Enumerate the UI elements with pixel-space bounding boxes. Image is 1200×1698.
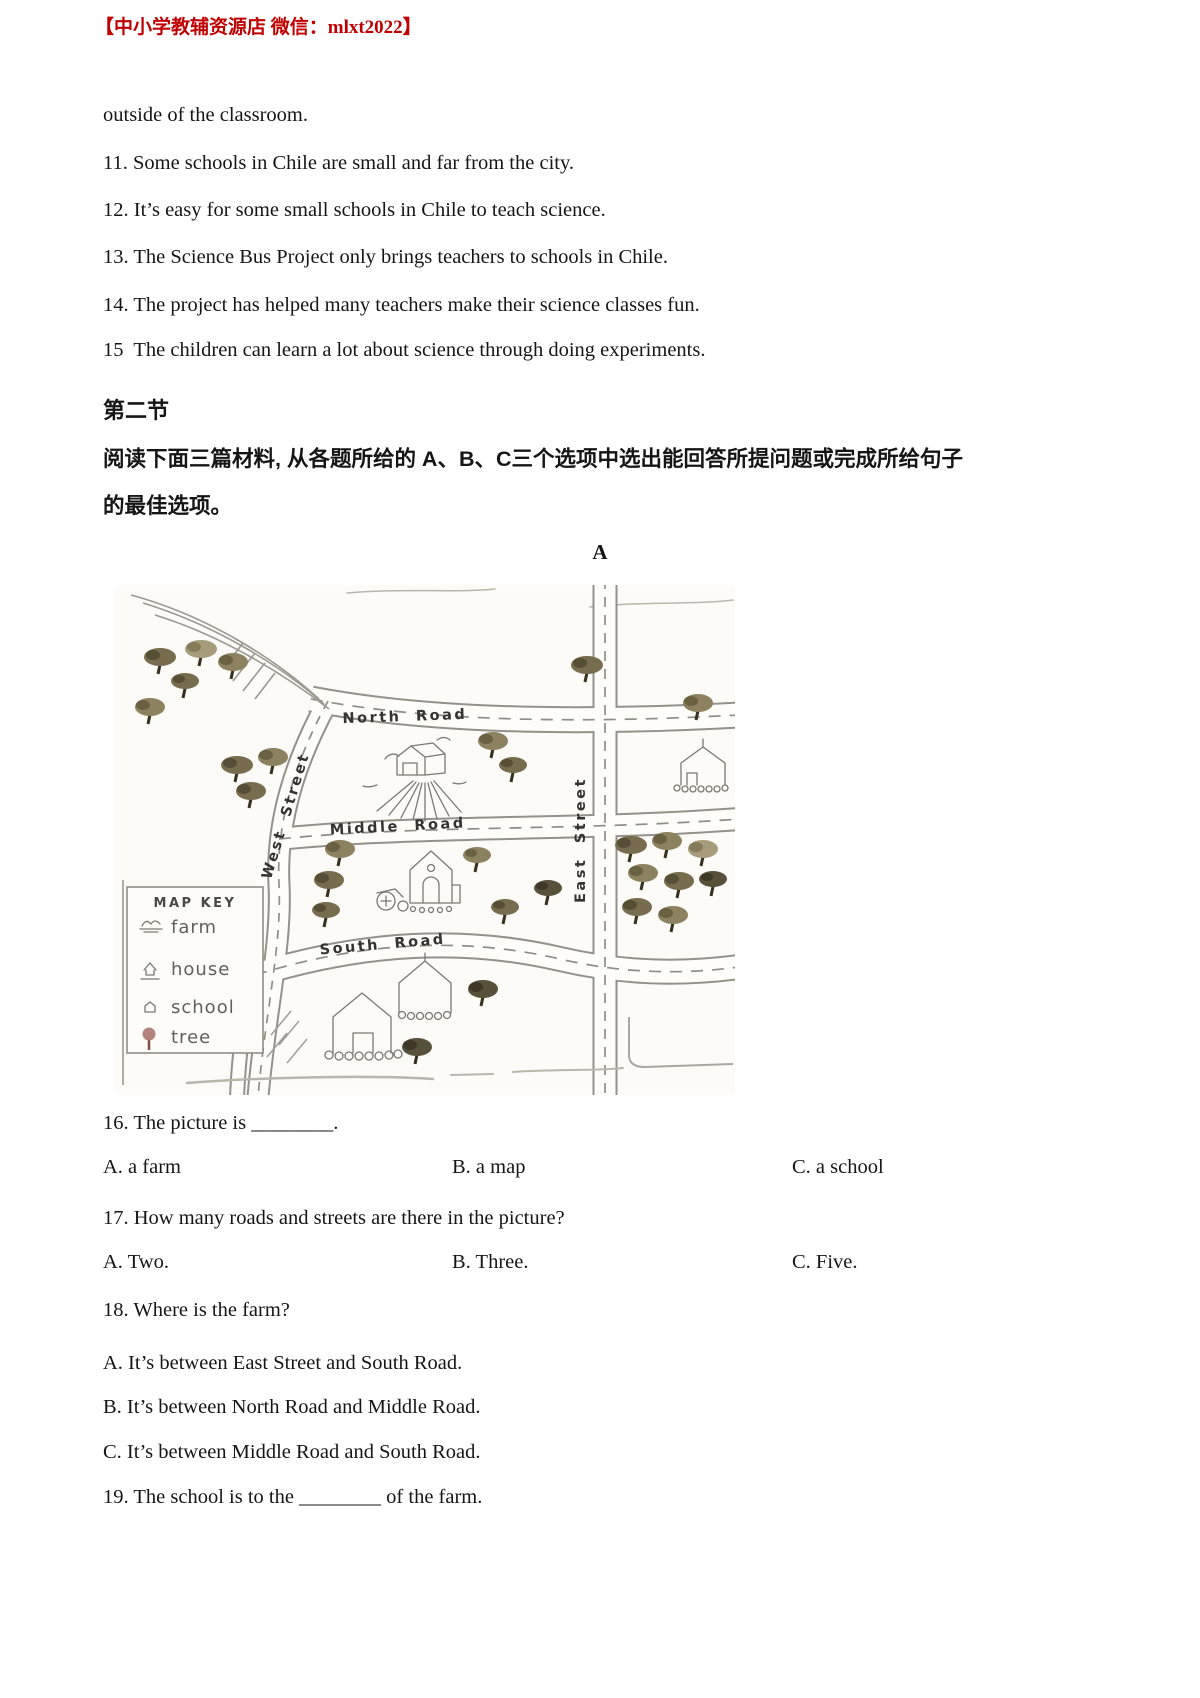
store-banner: 【中小学教辅资源店 微信：mlxt2022】	[95, 12, 422, 39]
passage-continuation-line: outside of the classroom.	[103, 93, 1160, 137]
options-16: A. a farm B. a map C. a school	[103, 1145, 1160, 1189]
option-16-b: B. a map	[452, 1145, 525, 1189]
option-18-b: B. It’s between North Road and Middle Ro…	[103, 1385, 1160, 1429]
option-18-c: C. It’s between Middle Road and South Ro…	[103, 1430, 1160, 1474]
question-18: 18. Where is the farm?	[103, 1288, 1160, 1332]
statement-15: 15 The children can learn a lot about sc…	[103, 328, 1160, 372]
passage-label-a: A	[0, 530, 1200, 574]
map-key-label-house: house	[171, 959, 230, 980]
map-key-label-tree: tree	[171, 1027, 211, 1048]
road-label-east: East Street	[573, 777, 589, 903]
question-19: 19. The school is to the ________ of the…	[103, 1475, 1160, 1519]
map-key-title: MAP KEY	[154, 896, 237, 911]
option-17-a: A. Two.	[103, 1240, 169, 1284]
option-17-b: B. Three.	[452, 1240, 528, 1284]
map-key-label-school: school	[171, 997, 235, 1018]
statement-13: 13. The Science Bus Project only brings …	[103, 235, 1160, 279]
map-image: .rlbl{font-family:"DejaVu Sans",sans-ser…	[115, 585, 735, 1095]
question-16: 16. The picture is ________.	[103, 1101, 1160, 1145]
statement-12: 12. It’s easy for some small schools in …	[103, 188, 1160, 232]
section-instructions-line1: 阅读下面三篇材料, 从各题所给的 A、B、C三个选项中选出能回答所提问题或完成所…	[103, 437, 1160, 481]
option-18-a: A. It’s between East Street and South Ro…	[103, 1341, 1160, 1385]
map-figure: .rlbl{font-family:"DejaVu Sans",sans-ser…	[115, 585, 735, 1095]
statement-14: 14. The project has helped many teachers…	[103, 283, 1160, 327]
exam-page: 【中小学教辅资源店 微信：mlxt2022】 outside of the cl…	[0, 0, 1200, 1698]
option-16-a: A. a farm	[103, 1145, 181, 1189]
statement-11: 11. Some schools in Chile are small and …	[103, 141, 1160, 185]
section-instructions-line2: 的最佳选项。	[103, 484, 1160, 528]
options-17: A. Two. B. Three. C. Five.	[103, 1240, 1160, 1284]
option-17-c: C. Five.	[792, 1240, 858, 1284]
question-17: 17. How many roads and streets are there…	[103, 1196, 1160, 1240]
option-16-c: C. a school	[792, 1145, 884, 1189]
section-title: 第二节	[103, 389, 1160, 433]
map-key-label-farm: farm	[171, 917, 217, 938]
